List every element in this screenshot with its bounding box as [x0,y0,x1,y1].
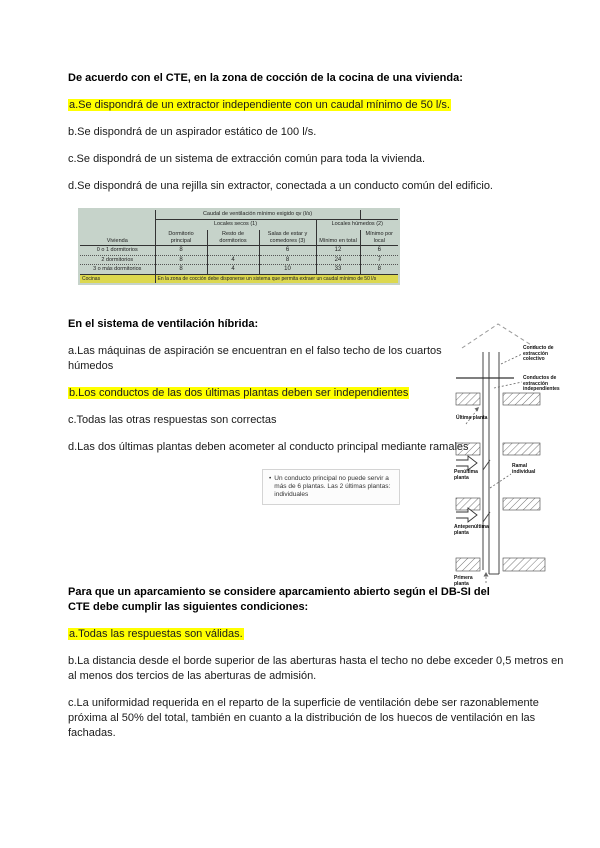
col-header-dormitorio-principal: Dormitorio principal [155,230,207,246]
question-1-option-d: d.Se dispondrá de una rejilla sin extrac… [68,179,573,194]
table-title: Caudal de ventilación mínimo exigido qv … [155,210,360,219]
table-title-row: Caudal de ventilación mínimo exigido qv … [80,210,398,219]
col-header-salas-estar: Salas de estar y comedores (3) [259,230,316,246]
col-header-minimo-total: Mínimo en total [316,230,360,246]
col-header-vivienda: Vivienda [80,230,155,246]
ventilation-flows-table: Caudal de ventilación mínimo exigido qv … [78,208,400,285]
table-row: 0 o 1 dormitorios 8 6 12 6 [80,246,398,256]
question-2-title: En el sistema de ventilación híbrida: [68,317,478,332]
question-2-option-d: d.Las dos últimas plantas deben acometer… [68,440,478,455]
question-3-title: Para que un aparcamiento se considere ap… [68,585,508,615]
bullet-icon: • [269,475,271,499]
ventilation-shaft-diagram: Conducto de extracción colectivo Conduct… [452,312,600,592]
cte-table: Caudal de ventilación mínimo exigido qv … [80,210,398,283]
col-header-minimo-local: Mínimo por local [360,230,398,246]
highlighted-answer: b.Los conductos de las dos últimas plant… [68,387,409,399]
diagram-label-conductos-independientes: Conductos de extracción independientes [523,376,575,393]
col-header-resto-dormitorios: Resto de dormitorios [207,230,259,246]
question-2: En el sistema de ventilación híbrida: a.… [68,317,478,467]
diagram-label-antepenultima-planta: Antepenúltima planta [454,525,488,536]
question-3-option-b: b.La distancia desde el borde superior d… [68,654,573,684]
highlighted-answer: a.Se dispondrá de un extractor independi… [68,99,451,111]
question-2-option-a: a.Las máquinas de aspiración se encuentr… [68,344,478,374]
table-header-row: Vivienda Dormitorio principal Resto de d… [80,230,398,246]
group-locales-secos: Locales secos (1) [155,219,316,230]
note-row-label: Cocinas [80,274,155,283]
question-1: De acuerdo con el CTE, en la zona de coc… [68,71,573,206]
table-group-row: Locales secos (1) Locales húmedos (2) [80,219,398,230]
question-1-title: De acuerdo con el CTE, en la zona de coc… [68,71,573,86]
question-1-option-b: b.Se dispondrá de un aspirador estático … [68,125,573,140]
question-3-option-a: a.Todas las respuestas son válidas. [68,627,573,642]
highlighted-answer: a.Todas las respuestas son válidas. [68,628,244,640]
question-3-option-c: c.La uniformidad requerida en el reparto… [68,696,573,741]
diagram-label-conducto-colectivo: Conducto de extracción colectivo [523,346,571,363]
group-locales-humedos: Locales húmedos (2) [316,219,398,230]
question-2-option-c: c.Todas las otras respuestas son correct… [68,413,478,428]
question-2-option-b: b.Los conductos de las dos últimas plant… [68,386,478,401]
table-note-row: Cocinas En la zona de cocción debe dispo… [80,274,398,283]
diagram-label-penultima-planta: Penúltima planta [454,470,486,481]
question-1-option-c: c.Se dispondrá de un sistema de extracci… [68,152,573,167]
diagram-label-ramal-individual: Ramal individual [512,464,548,475]
note-callout: • Un conducto principal no puede servir … [262,469,400,505]
callout-text: Un conducto principal no puede servir a … [274,475,395,499]
document-page: De acuerdo con el CTE, en la zona de coc… [0,0,600,848]
table-row: 3 o más dormitorios 8 4 10 33 8 [80,265,398,275]
diagram-label-ultima-planta: Última planta [456,416,490,422]
question-3: Para que un aparcamiento se considere ap… [68,585,573,753]
note-row-text: En la zona de cocción debe disponerse un… [155,274,398,283]
question-1-option-a: a.Se dispondrá de un extractor independi… [68,98,573,113]
table-row: 2 dormitorios 8 4 8 24 7 [80,255,398,265]
